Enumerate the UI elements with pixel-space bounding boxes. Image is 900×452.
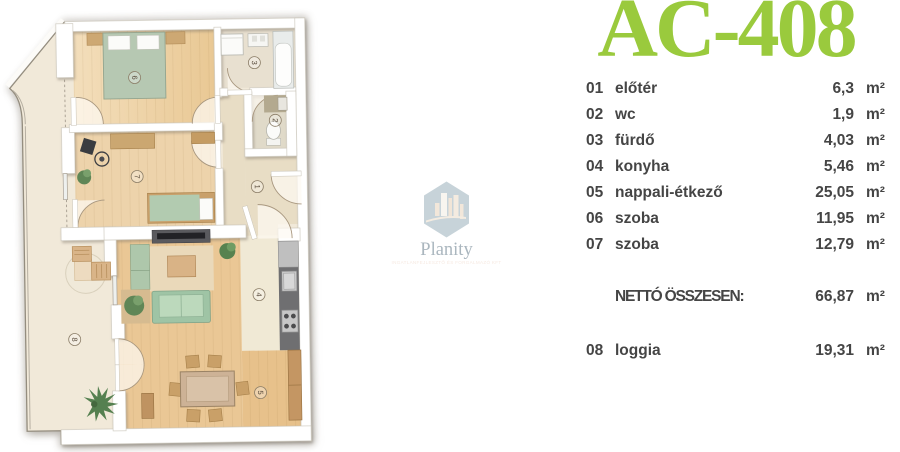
svg-text:1: 1	[253, 184, 262, 188]
svg-text:8: 8	[70, 337, 79, 341]
svg-text:3: 3	[250, 60, 259, 64]
svg-text:7: 7	[133, 174, 142, 178]
svg-text:6: 6	[130, 75, 139, 79]
svg-text:4: 4	[254, 292, 263, 296]
svg-text:2: 2	[271, 118, 280, 122]
svg-text:Planity: Planity	[420, 240, 473, 260]
svg-text:5: 5	[256, 390, 265, 394]
svg-text:INGATLANFEJLESZTŐ ÉS FORGALMAZ: INGATLANFEJLESZTŐ ÉS FORGALMAZÓ KFT	[392, 259, 502, 265]
